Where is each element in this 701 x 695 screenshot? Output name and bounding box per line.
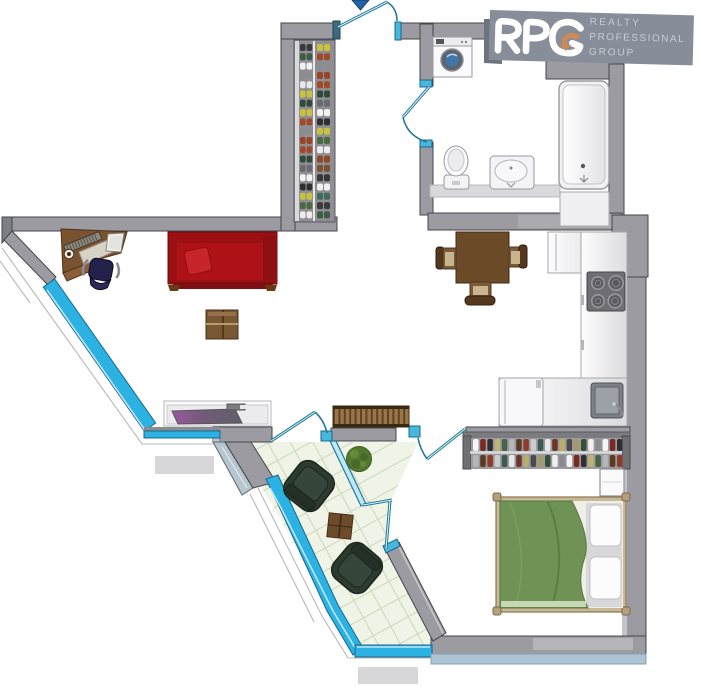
svg-text:REALTY: REALTY (590, 17, 642, 29)
svg-text:GROUP: GROUP (589, 47, 635, 59)
